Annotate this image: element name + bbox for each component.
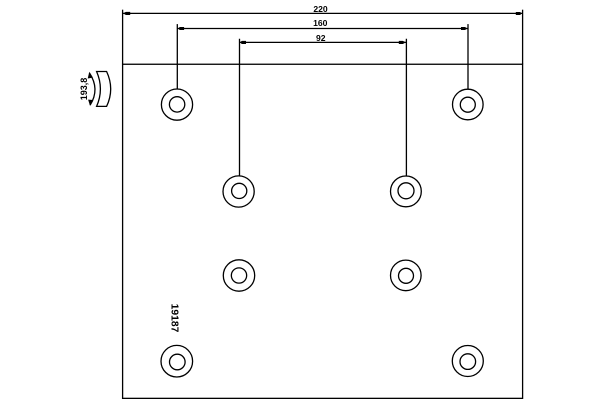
svg-text:220: 220: [313, 4, 328, 14]
svg-text:160: 160: [313, 18, 328, 28]
svg-text:92: 92: [316, 33, 326, 43]
svg-text:19187: 19187: [168, 304, 179, 333]
svg-text:193,8: 193,8: [79, 78, 89, 101]
